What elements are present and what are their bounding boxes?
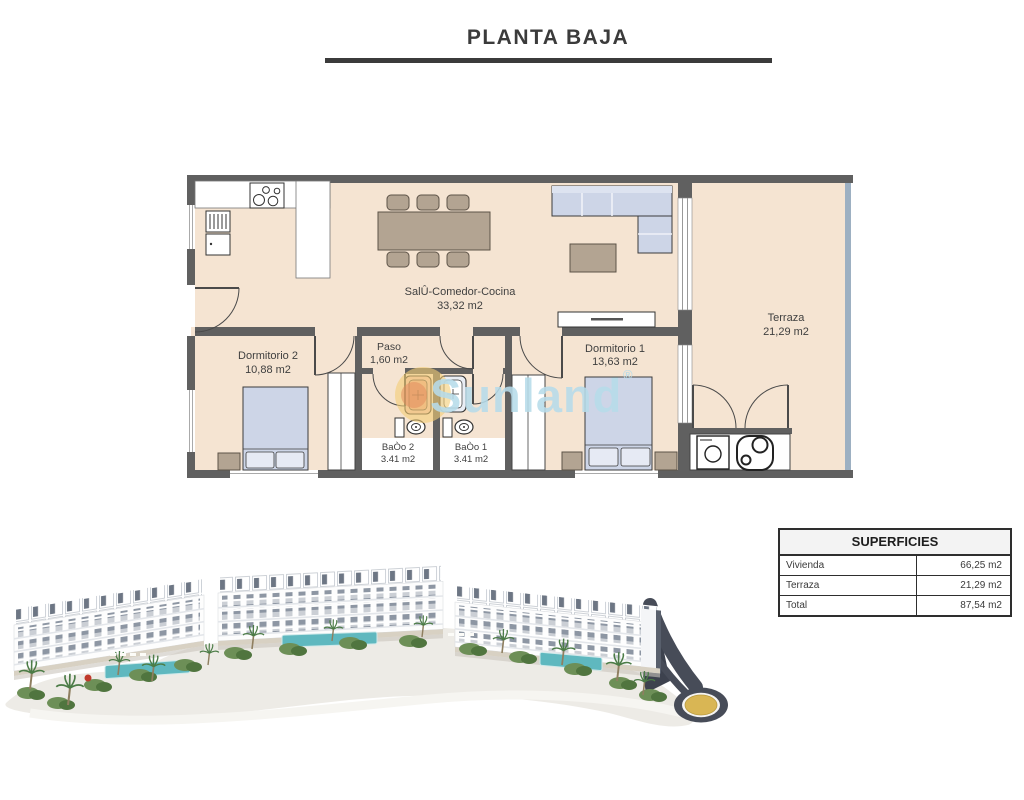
building-render — [0, 553, 740, 740]
boiler-icon — [737, 436, 773, 470]
row-value: 21,29 m2 — [916, 576, 1010, 595]
oven-icon — [206, 211, 230, 232]
room-area-bano-1: 3.41 m2 — [454, 454, 488, 465]
stove-icon — [250, 183, 284, 208]
room-area-salon: 33,32 m2 — [437, 300, 483, 312]
room-label-salon: SalÛ-Comedor-Cocina — [405, 285, 517, 298]
room-area-paso: 1,60 m2 — [370, 354, 408, 366]
table-row: Total 87,54 m2 — [780, 596, 1010, 615]
floorplan: SalÛ-Comedor-Cocina 33,32 m2 Terraza 21,… — [187, 173, 853, 485]
dining-chair — [447, 252, 469, 267]
superficies-table: SUPERFICIES Vivienda 66,25 m2 Terraza 21… — [778, 528, 1012, 617]
dining-chair — [417, 252, 439, 267]
row-label: Terraza — [780, 576, 916, 595]
table-row: Terraza 21,29 m2 — [780, 576, 1010, 596]
nightstand — [562, 452, 582, 470]
red-umbrella-icon — [85, 675, 92, 682]
dining-chair — [417, 195, 439, 210]
coffee-table — [570, 244, 616, 272]
nightstand — [218, 453, 240, 470]
title-underline — [325, 58, 772, 63]
wardrobe-dormitorio-2 — [328, 373, 355, 470]
watermark-text: Sunland — [430, 369, 622, 422]
utility-closet — [690, 434, 790, 470]
roundabout-center — [685, 695, 717, 715]
page-title: PLANTA BAJA — [286, 26, 810, 50]
row-value: 87,54 m2 — [916, 596, 1010, 615]
watermark-registered-icon: ® — [623, 367, 633, 382]
sun-logo-core-icon — [401, 382, 427, 408]
room-label-terraza: Terraza — [768, 312, 806, 324]
dining-chair — [447, 195, 469, 210]
row-label: Total — [780, 596, 916, 615]
dining-table — [378, 212, 490, 250]
tv-unit — [558, 312, 655, 327]
room-label-bano-1: BaÒo 1 — [455, 442, 487, 453]
room-area-dormitorio-2: 10,88 m2 — [245, 364, 291, 376]
terrace-glass-rail — [845, 183, 851, 470]
table-row: Vivienda 66,25 m2 — [780, 556, 1010, 576]
row-value: 66,25 m2 — [916, 556, 1010, 575]
dining-chair — [387, 195, 409, 210]
watermark: Sunland ® — [395, 367, 633, 423]
room-label-paso: Paso — [377, 341, 401, 353]
washing-machine-icon — [697, 436, 729, 469]
room-area-terraza: 21,29 m2 — [763, 326, 809, 338]
dining-chair — [387, 252, 409, 267]
room-area-bano-2: 3.41 m2 — [381, 454, 415, 465]
room-label-dormitorio-1: Dormitorio 1 — [585, 343, 645, 355]
bed-dormitorio-2 — [243, 387, 308, 470]
room-label-bano-2: BaÒo 2 — [382, 442, 414, 453]
page: PLANTA BAJA — [0, 0, 1024, 800]
nightstand — [655, 452, 677, 470]
row-label: Vivienda — [780, 556, 916, 575]
room-label-dormitorio-2: Dormitorio 2 — [238, 350, 298, 362]
fridge-icon — [206, 234, 230, 255]
table-header: SUPERFICIES — [780, 530, 1010, 556]
